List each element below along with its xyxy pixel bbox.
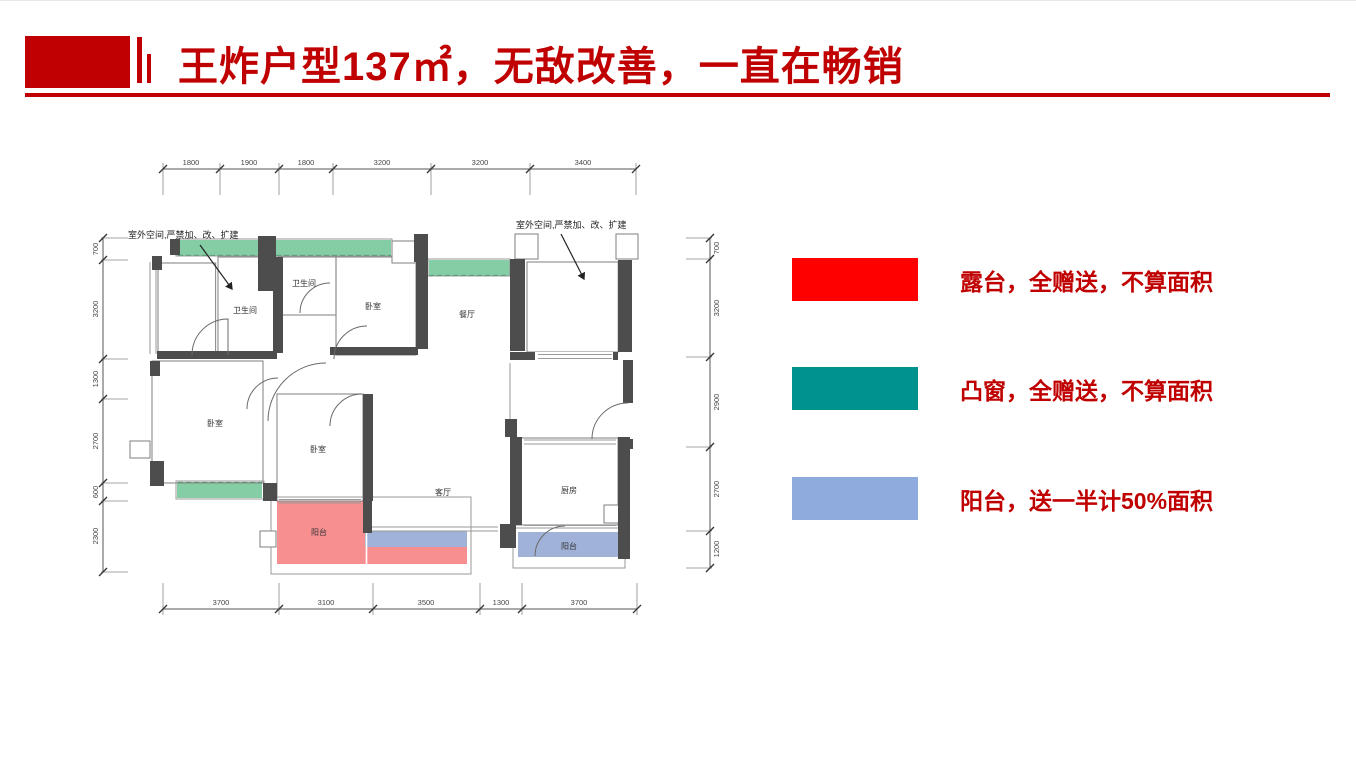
dimension-right: 700 3200 2900 2700 1200 bbox=[686, 234, 721, 572]
room-label-bed-left: 卧室 bbox=[207, 418, 223, 428]
room-label-bed-mid: 卧室 bbox=[310, 444, 326, 454]
bay-window-dashes bbox=[178, 256, 519, 483]
annotation-right-arrow bbox=[561, 234, 584, 279]
legend-item-balcony: 阳台，送一半计50%面积 bbox=[792, 477, 1213, 520]
legend-item-bay-window: 凸窗，全赠送，不算面积 bbox=[792, 367, 1213, 410]
room-outlines bbox=[150, 239, 625, 574]
giveaway-zones bbox=[177, 240, 623, 564]
dim-label: 1800 bbox=[298, 158, 315, 167]
dim-label: 1300 bbox=[91, 371, 100, 388]
outdoor-grid-left bbox=[158, 263, 216, 352]
bay-window-zone bbox=[177, 240, 260, 256]
walls-layer bbox=[150, 234, 633, 559]
room-label-living: 客厅 bbox=[435, 487, 451, 497]
title-underline bbox=[25, 93, 1330, 97]
title-accent-bar-1 bbox=[137, 37, 142, 83]
dim-label: 3700 bbox=[571, 598, 588, 607]
dim-label: 2700 bbox=[91, 433, 100, 450]
dim-label: 1200 bbox=[712, 541, 721, 558]
utility-boxes bbox=[130, 234, 638, 547]
dim-label: 3200 bbox=[712, 300, 721, 317]
dim-label: 1900 bbox=[241, 158, 258, 167]
dim-label: 3200 bbox=[472, 158, 489, 167]
room-label-dining: 餐厅 bbox=[459, 310, 475, 319]
page-title: 王炸户型137㎡，无敌改善，一直在畅销 bbox=[178, 34, 1328, 92]
dimension-left: 700 3200 1300 2700 600 2300 bbox=[91, 234, 128, 576]
room-label-terrace: 阳台 bbox=[311, 527, 327, 537]
title-accent-block bbox=[25, 36, 130, 88]
bay-window-zone bbox=[177, 482, 262, 498]
dim-label: 700 bbox=[712, 242, 721, 255]
dim-label: 1800 bbox=[183, 158, 200, 167]
slide: 王炸户型137㎡，无敌改善，一直在畅销 bbox=[0, 0, 1356, 762]
dim-label: 3200 bbox=[374, 158, 391, 167]
dim-label: 3200 bbox=[91, 301, 100, 318]
room-label-balcony: 阳台 bbox=[561, 541, 577, 551]
annotation-left: 室外空间,严禁加、改、扩建 bbox=[128, 229, 239, 289]
legend-label-balcony: 阳台，送一半计50%面积 bbox=[960, 482, 1213, 516]
dim-label: 2700 bbox=[712, 481, 721, 498]
room-label-kitchen: 厨房 bbox=[561, 485, 577, 495]
dim-label: 2900 bbox=[712, 394, 721, 411]
dim-label: 1300 bbox=[493, 598, 510, 607]
legend-label-terrace: 露台，全赠送，不算面积 bbox=[960, 263, 1213, 297]
balcony-strip-zone bbox=[365, 531, 467, 547]
dim-label: 700 bbox=[91, 243, 100, 256]
dim-label: 3100 bbox=[318, 598, 335, 607]
dimension-top: 1800 1900 1800 3200 3200 3400 bbox=[159, 158, 640, 195]
dim-label: 3400 bbox=[575, 158, 592, 167]
room-label-bath1: 卫生间 bbox=[233, 305, 257, 315]
annotation-right-text: 室外空间,严禁加、改、扩建 bbox=[516, 219, 627, 230]
legend-label-bay-window: 凸窗，全赠送，不算面积 bbox=[960, 372, 1213, 406]
dim-label: 3500 bbox=[418, 598, 435, 607]
legend-swatch-terrace bbox=[792, 258, 918, 301]
door-arcs bbox=[192, 283, 628, 556]
bay-window-zone bbox=[276, 240, 391, 256]
outdoor-grid-right bbox=[527, 262, 618, 352]
legend-item-terrace: 露台，全赠送，不算面积 bbox=[792, 258, 1213, 301]
floor-plan: 1800 1900 1800 3200 3200 3400 3700 3100 … bbox=[80, 131, 740, 631]
dim-label: 3700 bbox=[213, 598, 230, 607]
annotation-left-text: 室外空间,严禁加、改、扩建 bbox=[128, 229, 239, 240]
legend-swatch-bay-window bbox=[792, 367, 918, 410]
dim-label: 600 bbox=[91, 486, 100, 499]
dim-label: 2300 bbox=[91, 528, 100, 545]
title-accent-bar-2 bbox=[147, 54, 151, 83]
dimension-bottom: 3700 3100 3500 1300 3700 bbox=[159, 583, 641, 615]
bay-window-zone bbox=[429, 260, 519, 276]
room-label-bath2: 卫生间 bbox=[292, 278, 316, 288]
legend-swatch-balcony bbox=[792, 477, 918, 520]
room-label-bed-top: 卧室 bbox=[365, 301, 381, 311]
